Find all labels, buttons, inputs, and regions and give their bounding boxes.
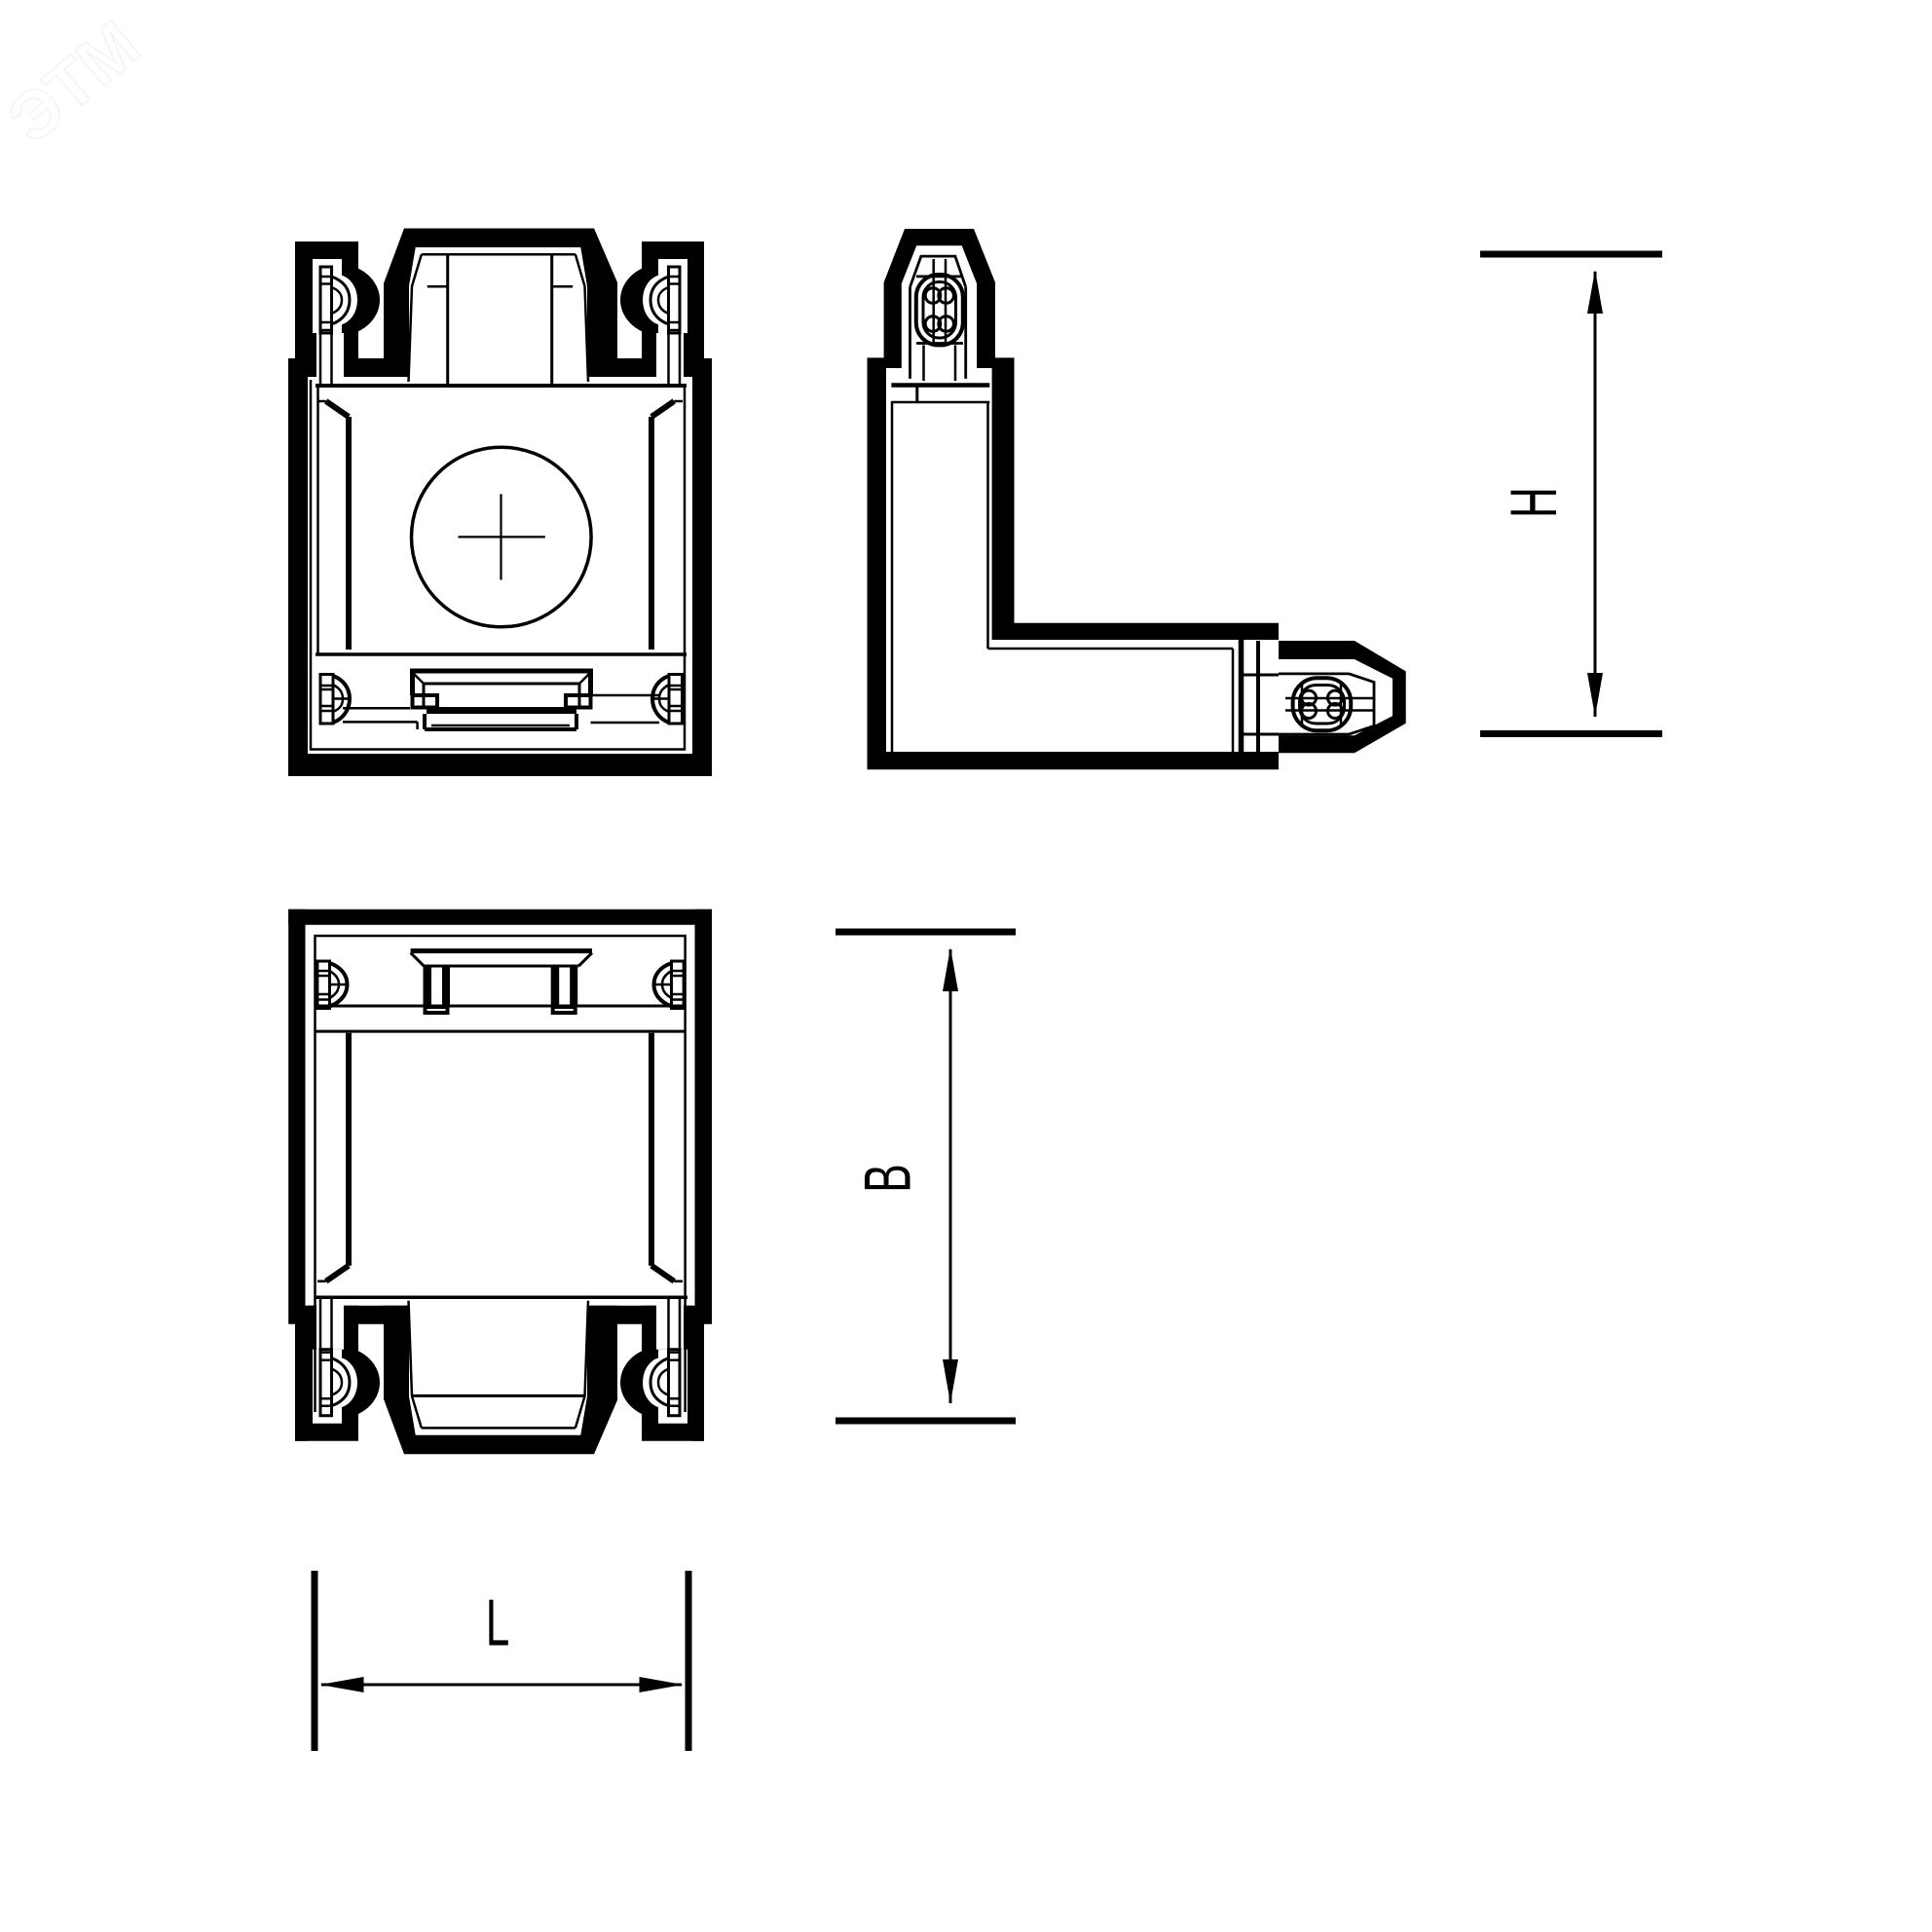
svg-text:B: B xyxy=(851,1164,925,1192)
svg-text:L: L xyxy=(486,1586,510,1660)
svg-text:H: H xyxy=(1498,487,1572,518)
